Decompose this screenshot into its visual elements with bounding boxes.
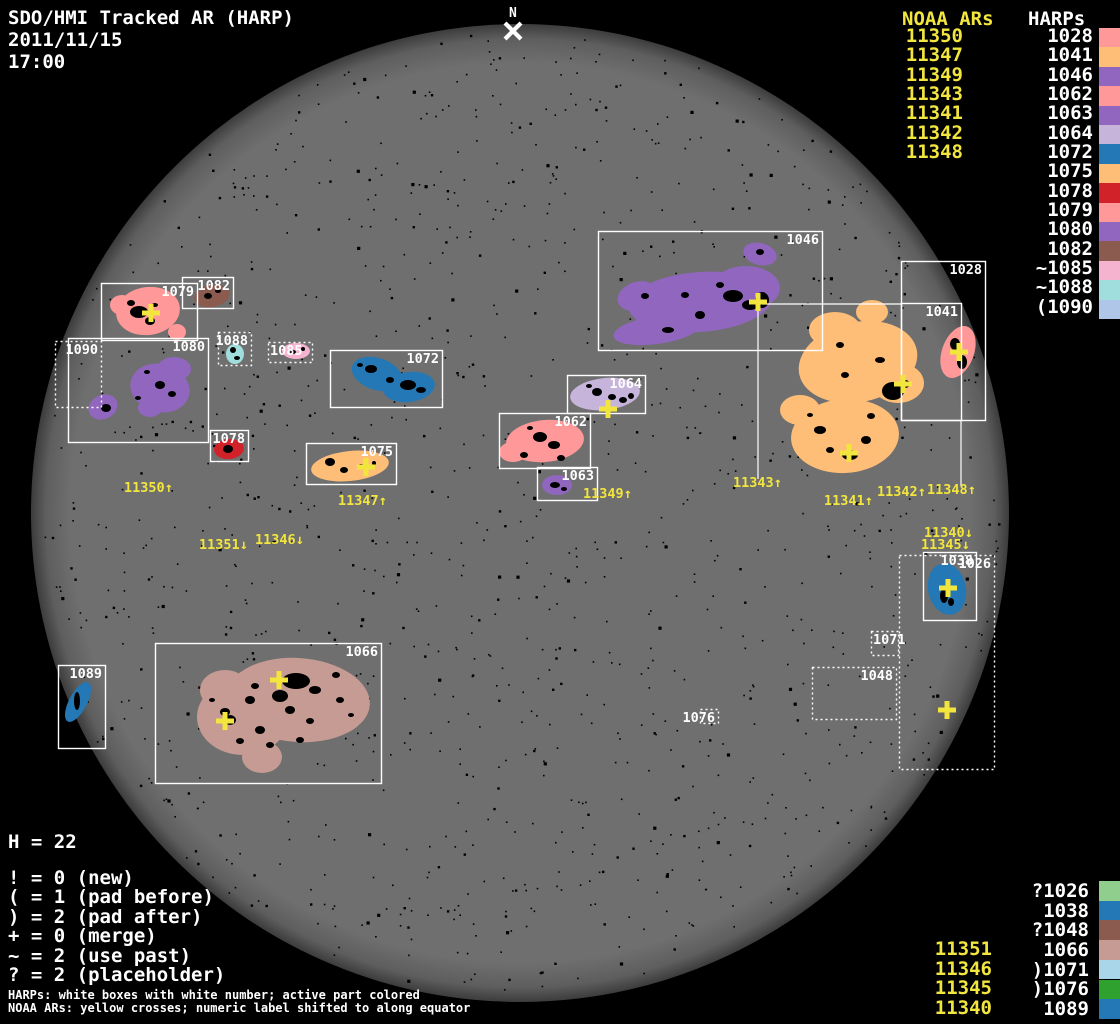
footer-notes: HARPs: white boxes with white number; ac… <box>8 989 470 1014</box>
harp-swatch-1028 <box>1099 28 1120 47</box>
harp-swatch-1062 <box>1099 86 1120 105</box>
harp-swatch-1080 <box>1099 222 1120 241</box>
harp-swatch-1063 <box>1099 106 1120 125</box>
harp-swatch-1026 <box>1099 881 1120 901</box>
footer-line-noaa: NOAA ARs: yellow crosses; numeric label … <box>8 1002 470 1015</box>
harp-swatch-1078 <box>1099 183 1120 202</box>
harp-swatch-1071 <box>1099 960 1120 980</box>
bottom-harp-row-1026: ?1026 <box>960 881 1120 901</box>
bottom-harp-row-1038: 1038 <box>960 901 1120 921</box>
harp-entry-1090: (1090 <box>1036 298 1093 317</box>
noaa-ar-label-11346: 11346↓ <box>255 532 304 548</box>
noaa-ar-11341: 11341 <box>906 104 963 123</box>
harp-swatch-1085 <box>1099 261 1120 280</box>
harp-swatch-1089 <box>1099 999 1120 1019</box>
noaa-ar-11347: 11347 <box>906 46 963 65</box>
harp-box-label-1080: 1080 <box>172 339 205 355</box>
harp-box-label-1041: 1041 <box>925 304 958 320</box>
harp-box-label-1089: 1089 <box>69 666 102 682</box>
noaa-ar-label-11350: 11350↑ <box>124 480 173 496</box>
noaa-ar-label-11343: 11343↑ <box>733 475 782 491</box>
header-time: 17:00 <box>8 51 294 73</box>
page-title: SDO/HMI Tracked AR (HARP) <box>8 7 294 29</box>
flag-legend-line-3: + = 0 (merge) <box>8 927 225 946</box>
harp-entry-1063: 1063 <box>1036 104 1093 123</box>
harp-entry-1075: 1075 <box>1036 162 1093 181</box>
harp-swatch-1038 <box>1099 901 1120 921</box>
harp-box-label-1062: 1062 <box>554 414 587 430</box>
harp-swatch-1048 <box>1099 920 1120 940</box>
noaa-ar-label-11347: 11347↑ <box>338 493 387 509</box>
harp-swatch-1079 <box>1099 203 1120 222</box>
harp-list: 1028104110461062106310641072107510781079… <box>1036 27 1093 317</box>
harp-count: H = 22 <box>8 831 77 853</box>
harp-swatch-1090 <box>1099 300 1120 319</box>
harp-box-label-1076: 1076 <box>682 710 715 726</box>
harp-box-label-1082: 1082 <box>197 278 230 294</box>
harp-box-label-1048: 1048 <box>860 668 893 684</box>
flag-legend: ! = 0 (new)( = 1 (pad before)) = 2 (pad … <box>8 869 225 985</box>
harp-box-label-1046: 1046 <box>786 232 819 248</box>
harp-box-label-1064: 1064 <box>609 376 642 392</box>
noaa-ar-label-11349: 11349↑ <box>583 486 632 502</box>
harp-swatch-1088 <box>1099 280 1120 299</box>
flag-legend-line-5: ? = 2 (placeholder) <box>8 966 225 985</box>
harp-swatch-1075 <box>1099 164 1120 183</box>
harp-swatch-1064 <box>1099 125 1120 144</box>
harp-swatch-1046 <box>1099 67 1120 86</box>
harp-box-label-1071: 1071 <box>873 632 906 648</box>
footer-line-harps: HARPs: white boxes with white number; ac… <box>8 989 470 1002</box>
harp-box-label-1026: 1026 <box>958 556 991 572</box>
noaa-ar-list: 11350113471134911343113411134211348 <box>906 27 963 162</box>
noaa-ar-label-11341: 11341↑ <box>824 493 873 509</box>
bottom-harp-number: ?1026 <box>960 880 1089 902</box>
harp-box-label-1079: 1079 <box>161 284 194 300</box>
harp-swatch-1072 <box>1099 144 1120 163</box>
harp-box-label-1085: 1085 <box>270 343 303 359</box>
harp-box-label-1072: 1072 <box>406 351 439 367</box>
header-date: 2011/11/15 <box>8 29 294 51</box>
harp-swatch-1066 <box>1099 940 1120 960</box>
noaa-ar-label-11351: 11351↓ <box>199 537 248 553</box>
harp-visualization: 1079108210801090108810851078107210751062… <box>0 0 1120 1024</box>
bottom-right-noaa-list: 11351113461134511340 <box>935 940 992 1019</box>
harp-entry-1088: ~1088 <box>1036 278 1093 297</box>
harp-box-label-1090: 1090 <box>65 342 98 358</box>
flag-legend-line-1: ( = 1 (pad before) <box>8 888 225 907</box>
bottom-noaa-ar-11351: 11351 <box>935 940 992 960</box>
harp-swatch-1082 <box>1099 241 1120 260</box>
solar-disk <box>31 24 1009 1002</box>
harp-box-label-1063: 1063 <box>561 468 594 484</box>
noaa-ar-label-11345: 11345↓ <box>921 537 970 553</box>
harp-swatch-1076 <box>1099 980 1120 1000</box>
harp-entry-1041: 1041 <box>1036 46 1093 65</box>
north-label: N <box>509 6 517 21</box>
bottom-noaa-ar-11340: 11340 <box>935 999 992 1019</box>
harp-box-label-1078: 1078 <box>212 431 245 447</box>
bottom-harp-number: 1038 <box>960 900 1089 922</box>
harp-box-label-1028: 1028 <box>949 262 982 278</box>
harp-entry-1080: 1080 <box>1036 220 1093 239</box>
noaa-ar-label-11342: 11342↑ <box>877 484 926 500</box>
noaa-ar-11348: 11348 <box>906 143 963 162</box>
harp-box-label-1088: 1088 <box>215 333 248 349</box>
header: SDO/HMI Tracked AR (HARP) 2011/11/15 17:… <box>8 7 294 73</box>
harp-box-label-1066: 1066 <box>345 644 378 660</box>
harp-box-label-1075: 1075 <box>360 444 393 460</box>
harp-swatch-1041 <box>1099 47 1120 66</box>
noaa-ar-label-11348: 11348↑ <box>927 482 976 498</box>
